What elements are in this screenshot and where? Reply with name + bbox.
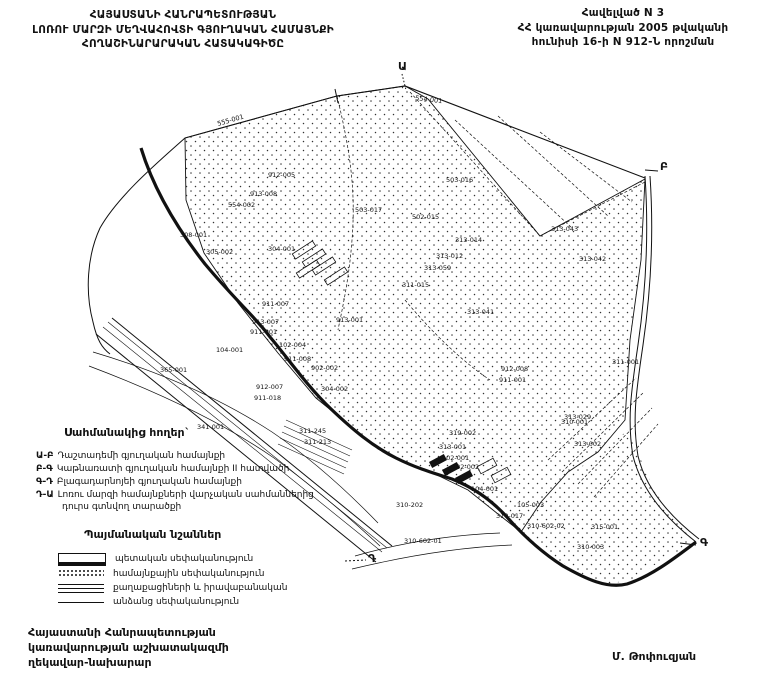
segment-text: Լոռու մարզի համայնքների վարչական սահմանն… <box>58 490 314 512</box>
parcel-label: 313-002 <box>574 440 601 448</box>
adjacent-land-item: Դ-ԱԼոռու մարզի համայնքների վարչական սահմ… <box>36 489 328 513</box>
parcel-label: 311-015 <box>402 281 429 289</box>
segment-code: Գ-Դ <box>36 477 53 487</box>
adjacent-land-item: Գ-ԴԲլագադարնոյեի գյուղական համայնքի <box>36 476 328 488</box>
conventional-signs-legend: Պայմանական նշաններ պետական սեփականությու… <box>58 528 298 610</box>
signatory-line: կառավարության աշխատակազմի <box>28 641 229 656</box>
sign-label: պետական սեփականություն <box>115 553 253 565</box>
state-ownership-icon <box>58 553 106 566</box>
parcel-label: 313-042 <box>579 255 606 263</box>
parcel-label: 102-004 <box>279 341 306 349</box>
parcel-label: 503-017 <box>355 206 382 214</box>
segment-text: Բլագադարնոյեի գյուղական համայնքի <box>57 477 242 487</box>
parcel-label: 503-016 <box>446 176 473 184</box>
parcel-label: 313-012 <box>436 252 463 260</box>
segment-text: Կաթնառատի գյուղական համայնքի II հատվածի <box>57 464 289 474</box>
parcel-label: 911-018 <box>254 394 281 402</box>
sign-row: անձանց սեփականություն <box>58 596 298 608</box>
parcel-label: 912-005 <box>268 171 295 179</box>
parcel-label: 912-008 <box>501 365 528 373</box>
parcel-label: 313-059 <box>424 264 451 272</box>
corner-label: Բ <box>660 160 668 173</box>
parcel-label: 304-001 <box>268 245 295 253</box>
parcel-label: 913-008 <box>250 190 277 198</box>
parcel-label: 365-001 <box>160 366 187 374</box>
cadastral-plan-page: ՀԱՅԱՍՏԱՆԻ ՀԱՆՐԱՊԵՏՈՒԹՅԱՆ ԼՈՌՈՒ ՄԱՐԶԻ ՄԵՂ… <box>0 0 779 680</box>
parcel-label: 911-007 <box>262 300 289 308</box>
sign-label: համայնքային սեփականություն <box>113 568 264 580</box>
sign-label: անձանց սեփականություն <box>113 596 239 608</box>
sign-label: քաղաքացիների և իրավաբանական <box>113 582 287 594</box>
corner-label: Ա <box>398 60 407 73</box>
signatory-line: Հայաստանի Հանրապետության <box>28 626 229 641</box>
parcel-label: 911-001 <box>499 376 526 384</box>
parcel-label: 304-002 <box>321 385 348 393</box>
parcel-label: 104-001 <box>216 346 243 354</box>
parcel-label: 911-001 <box>250 328 277 336</box>
corner-label: Դ <box>368 552 377 565</box>
parcel-label: 311-001 <box>612 358 639 366</box>
adjacent-lands-title: Սահմանակից հողեր` <box>64 426 328 441</box>
parcel-label: 912-007 <box>256 383 283 391</box>
parcel-label: 313-014 <box>455 236 482 244</box>
parcel-label: 913-001 <box>336 316 363 324</box>
parcel-label: 913-007 <box>252 318 279 326</box>
segment-text: Դաշտադեմի գյուղական համայնքի <box>58 451 226 461</box>
sign-row: համայնքային սեփականություն <box>58 568 298 580</box>
parcel-label: 102-001 <box>442 454 469 462</box>
parcel-label: 310-602-02 <box>527 522 565 530</box>
corner-label: Գ <box>700 536 709 549</box>
parcel-label: 310-001 <box>561 418 588 426</box>
conventional-signs-title: Պայմանական նշաններ <box>84 528 298 543</box>
parcel-label: 102-002 <box>452 463 479 471</box>
parcel-label: 305-002 <box>206 248 233 256</box>
corner-b-tick <box>645 170 658 171</box>
sign-row: պետական սեփականություն <box>58 553 298 566</box>
citizens-ownership-icon <box>58 584 104 593</box>
parcel-label: 310-202 <box>396 501 423 509</box>
segment-code: Ա-Բ <box>36 451 54 461</box>
parcel-label: 104-001 <box>471 485 498 493</box>
sign-row: քաղաքացիների և իրավաբանական <box>58 582 298 594</box>
parcel-label: 554-002 <box>228 201 255 209</box>
parcel-label: 308-001 <box>180 231 207 239</box>
parcel-label: 313-041 <box>467 308 494 316</box>
adjacent-lands-legend: Սահմանակից հողեր` Ա-ԲԴաշտադեմի գյուղական… <box>36 426 328 515</box>
community-ownership-icon <box>58 569 104 578</box>
west-boundary <box>88 138 185 354</box>
parcel-label: 911-008 <box>284 355 311 363</box>
parcel-label: 310-017 <box>496 512 523 520</box>
parcel-label: 313-043 <box>551 225 578 233</box>
signatory-line: ղեկավար-նախարար <box>28 656 229 671</box>
parcel-label: 313-001 <box>439 443 466 451</box>
citizens-ownership-line-icon <box>58 602 104 603</box>
parcel-label: 319-002 <box>449 429 476 437</box>
signatory-title: Հայաստանի Հանրապետության կառավարության ա… <box>28 626 229 671</box>
parcel-label: 105-003 <box>517 501 544 509</box>
segment-code: Դ-Ա <box>36 490 54 500</box>
adjacent-land-item: Բ-ԳԿաթնառատի գյուղական համայնքի II հատվա… <box>36 463 328 475</box>
parcel-label: 315-001 <box>591 523 618 531</box>
parcel-label: 502-015 <box>412 213 439 221</box>
parcel-label: 310-003 <box>577 543 604 551</box>
corner-d-tick <box>345 560 366 561</box>
signatory-name: Մ. Թոփուզյան <box>612 650 696 665</box>
adjacent-land-item: Ա-ԲԴաշտադեմի գյուղական համայնքի <box>36 450 328 462</box>
segment-code: Բ-Գ <box>36 464 53 474</box>
parcel-label: 902-002 <box>311 364 338 372</box>
parcel-label: 310-602-01 <box>404 537 442 545</box>
